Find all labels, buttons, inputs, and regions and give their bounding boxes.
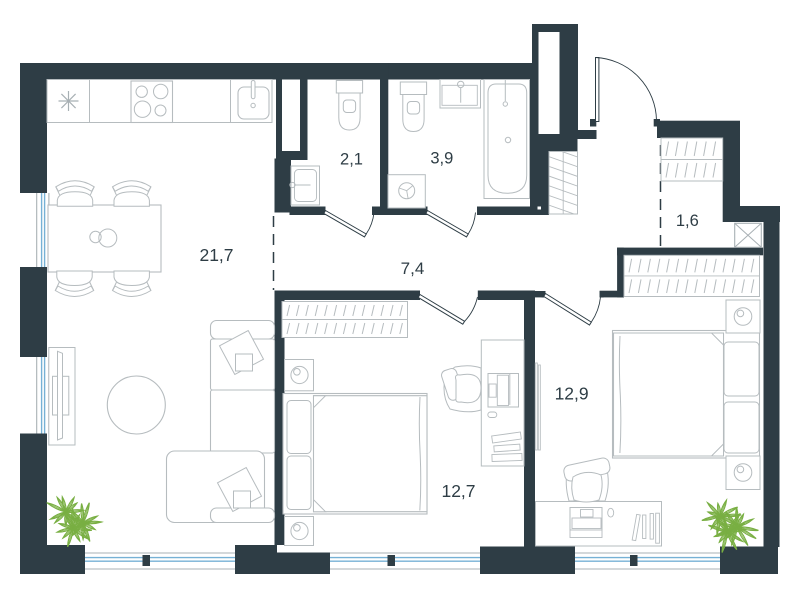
svg-text:12,9: 12,9 — [555, 384, 589, 404]
svg-text:2,1: 2,1 — [340, 151, 363, 169]
svg-text:12,7: 12,7 — [441, 481, 475, 501]
svg-text:21,7: 21,7 — [199, 245, 233, 265]
svg-text:7,4: 7,4 — [401, 259, 425, 278]
svg-text:3,9: 3,9 — [430, 150, 453, 168]
svg-text:1,6: 1,6 — [676, 212, 699, 230]
